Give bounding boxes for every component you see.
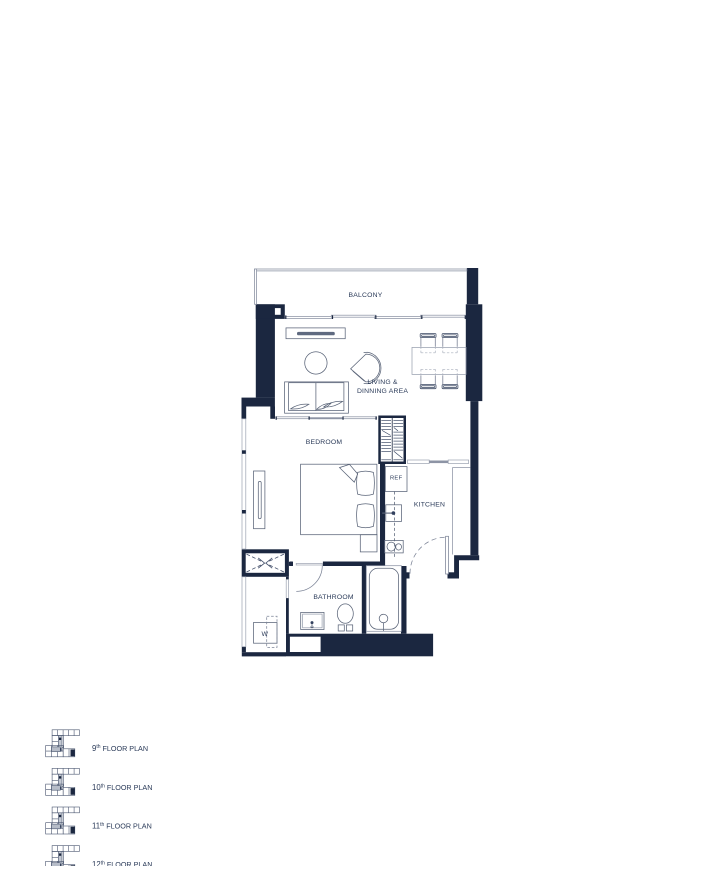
svg-text:LIVING &: LIVING &	[367, 379, 398, 386]
svg-text:BATHROOM: BATHROOM	[313, 594, 354, 601]
svg-text:W: W	[261, 631, 268, 638]
svg-text:BEDROOM: BEDROOM	[306, 439, 343, 446]
svg-text:12th FLOOR PLAN: 12th FLOOR PLAN	[92, 860, 152, 866]
svg-text:9th FLOOR PLAN: 9th FLOOR PLAN	[92, 744, 148, 753]
svg-text:REF: REF	[390, 476, 403, 482]
svg-text:BALCONY: BALCONY	[349, 292, 383, 299]
svg-text:KITCHEN: KITCHEN	[414, 502, 445, 509]
svg-text:DINNING AREA: DINNING AREA	[357, 388, 408, 395]
